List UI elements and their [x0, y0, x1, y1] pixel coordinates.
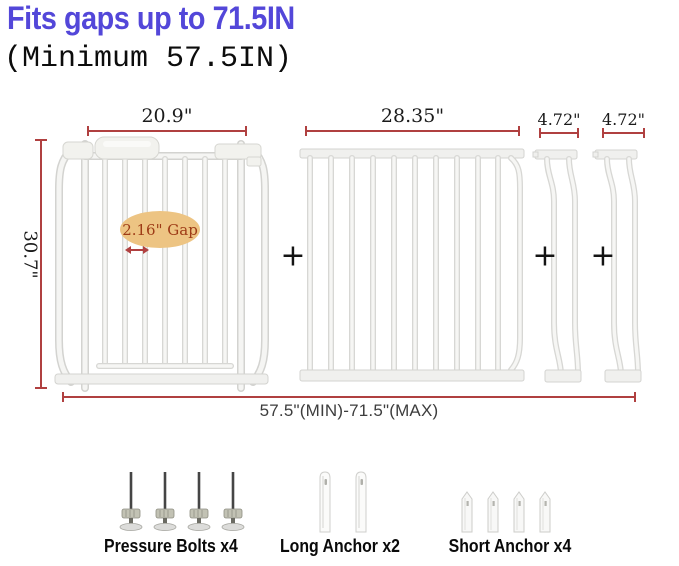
dim-line	[602, 132, 645, 134]
dim-total-range-label: 57.5"(MIN)-71.5"(MAX)	[260, 401, 439, 421]
dim-height-label: 30.7"	[20, 227, 41, 283]
gap-arrow-icon	[126, 246, 148, 254]
long-anchor-label: Long Anchor x2	[278, 536, 401, 557]
panel-bars	[310, 158, 520, 370]
dim-ext2-width-label: 4.72"	[602, 112, 645, 128]
plus-icon-1: +	[280, 239, 305, 274]
pressure-bolt-icon	[186, 471, 212, 533]
long-anchor-icons	[315, 470, 371, 534]
dim-line	[305, 130, 520, 132]
headline: Fits gaps up to 71.5IN	[7, 0, 295, 37]
gate-base-bar	[55, 374, 268, 384]
dim-ext1-width-label: 4.72"	[538, 112, 581, 128]
dim-ext2-width: 4.72"	[602, 112, 645, 134]
dim-gate-width-label: 20.9"	[141, 107, 192, 126]
dim-ext1-width: 4.72"	[539, 112, 579, 134]
short-anchor-icon	[510, 490, 528, 534]
pressure-bolt-icon	[220, 471, 246, 533]
short-anchor-icon	[458, 490, 476, 534]
panel-bottom-rail	[300, 370, 524, 381]
gate-door-bars	[99, 159, 231, 366]
dim-total-range: 57.5"(MIN)-71.5"(MAX)	[62, 396, 636, 421]
pressure-bolt-icon	[152, 471, 178, 533]
dim-line	[62, 396, 636, 398]
short-anchor-icon	[484, 490, 502, 534]
pressure-bolts-icons	[118, 471, 246, 533]
dim-panel-width: 28.35"	[305, 107, 520, 132]
long-anchor-icon	[351, 470, 371, 534]
sub-headline: (Minimum 57.5IN)	[4, 42, 292, 76]
pressure-bolt-icon	[118, 471, 144, 533]
short-anchor-label: Short Anchor x4	[448, 536, 571, 557]
plus-icon-2: +	[532, 239, 557, 274]
pressure-bolts-label: Pressure Bolts x4	[104, 536, 236, 557]
gate-handle	[95, 137, 159, 159]
dim-line	[539, 132, 579, 134]
wide-extension-panel-illustration	[298, 143, 526, 388]
dim-line	[87, 130, 247, 132]
dim-panel-width-label: 28.35"	[381, 107, 444, 126]
walk-through-gate-illustration	[55, 136, 287, 398]
gate-hinge	[63, 142, 93, 159]
gap-callout: 2.16" Gap	[120, 211, 200, 248]
short-anchor-icon	[536, 490, 554, 534]
product-dimension-diagram: Fits gaps up to 71.5IN (Minimum 57.5IN) …	[0, 0, 679, 566]
long-anchor-icon	[315, 470, 335, 534]
plus-icon-3: +	[590, 239, 615, 274]
short-anchor-icons	[458, 490, 554, 534]
dim-gate-width: 20.9"	[87, 107, 247, 132]
